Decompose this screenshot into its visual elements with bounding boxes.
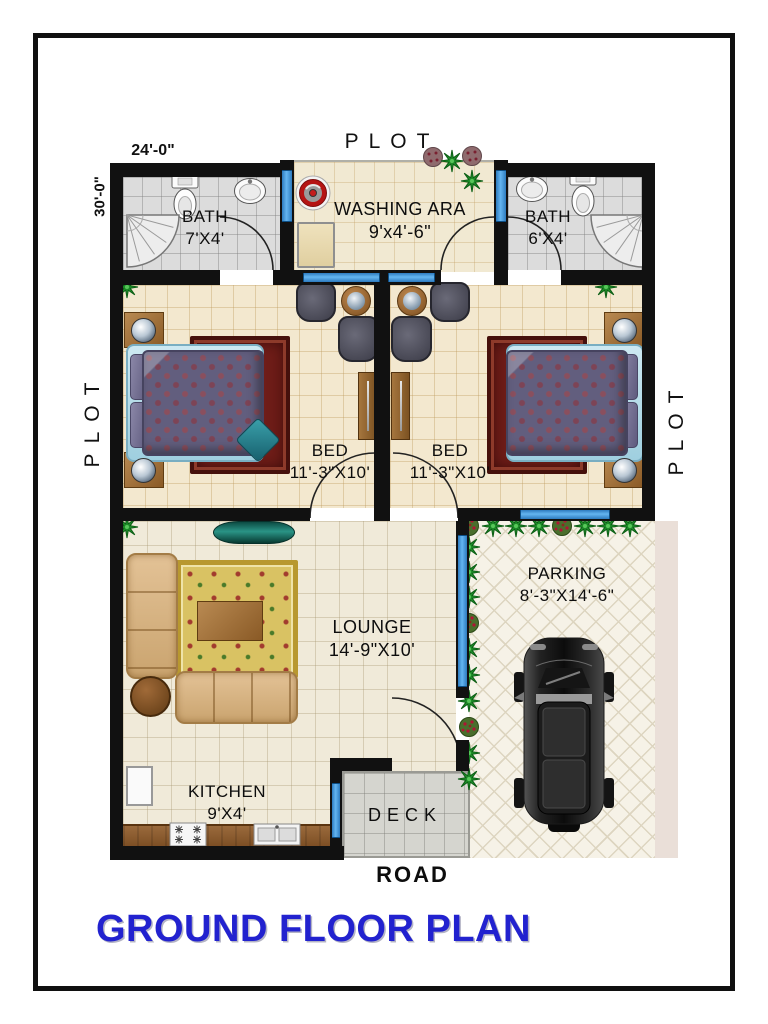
bed-right-side-table	[397, 286, 427, 316]
lounge-sofa	[175, 671, 298, 724]
window-washing-2	[388, 273, 435, 282]
dimension-plot-depth: 30'-0"	[92, 149, 109, 245]
road-label: ROAD	[340, 862, 485, 888]
label-bed-right: BED 11'-3"X10'	[385, 440, 515, 484]
room-name: BATH	[150, 206, 260, 228]
room-size: 11'-3"X10'	[385, 462, 515, 484]
dimension-plot-width: 24'-0"	[118, 142, 188, 160]
wall-bottom	[110, 846, 344, 860]
wall-between-bedrooms	[374, 285, 390, 521]
room-name: BED	[385, 440, 515, 462]
room-size: 7'X4'	[150, 228, 260, 250]
label-washing-area: WASHING ARA 9'x4'-6"	[310, 198, 490, 244]
bed-left-lamp-top	[131, 318, 156, 343]
room-size: 9'x4'-6"	[310, 221, 490, 244]
room-size: 11'-3"X10'	[265, 462, 395, 484]
wall-bed-left-bottom	[123, 508, 310, 521]
plot-label-left: PLOT	[81, 360, 105, 480]
plot-label-top: PLOT	[312, 130, 472, 154]
label-bath-left: BATH 7'X4'	[150, 206, 260, 250]
bed-right-lamp-top	[612, 318, 637, 343]
bed-left-lamp-bottom	[131, 458, 156, 483]
room-name: BED	[265, 440, 395, 462]
side-walkway	[655, 521, 678, 858]
room-name: PARKING	[487, 563, 647, 585]
room-size: 9'X4'	[152, 803, 302, 825]
kitchen-counter	[123, 824, 335, 848]
bed-right-armchair-2	[391, 316, 432, 362]
wall-bath-right-bottom	[561, 270, 642, 285]
plot-label-right: PLOT	[665, 368, 689, 488]
bed-left-armchair-2	[338, 316, 379, 362]
label-kitchen: KITCHEN 9'X4'	[152, 781, 302, 825]
lounge-round-table	[130, 676, 171, 717]
wall-bath-left-bottom	[123, 270, 220, 285]
window-bed-right-parking	[520, 510, 610, 519]
page-title: GROUND FLOOR PLAN	[96, 908, 531, 951]
wall-deck-top	[330, 758, 392, 771]
room-name: BATH	[493, 206, 603, 228]
room-size: 14'-9"X10'	[297, 639, 447, 662]
label-lounge: LOUNGE 14'-9"X10'	[297, 616, 447, 662]
wall-top-right	[494, 163, 655, 177]
room-name: KITCHEN	[152, 781, 302, 803]
room-name: DECK	[345, 804, 465, 827]
window-washing-1	[303, 273, 380, 282]
wall-top-left	[110, 163, 294, 177]
lounge-corner-sofa	[126, 553, 178, 679]
wall-deck-right-stub	[456, 740, 469, 771]
room-size: 6'X4'	[493, 228, 603, 250]
label-deck: DECK	[345, 804, 465, 827]
bed-right-duvet	[506, 350, 628, 456]
kitchen-refrigerator	[126, 766, 153, 806]
window-bath-left	[282, 170, 292, 222]
floor-plan-page: BATH 7'X4' WASHING ARA 9'x4'-6" BATH 6'X…	[0, 0, 768, 1024]
bed-right-armchair-1	[430, 282, 470, 322]
window-lounge-parking	[458, 535, 467, 687]
lounge-console	[213, 521, 295, 544]
label-bath-right: BATH 6'X4'	[493, 206, 603, 250]
lounge-coffee-table	[197, 601, 263, 641]
room-size: 8'-3"X14'-6"	[487, 585, 647, 607]
label-parking: PARKING 8'-3"X14'-6"	[487, 563, 647, 607]
bed-right-lamp-bottom	[612, 458, 637, 483]
bed-left-side-table	[341, 286, 371, 316]
window-kitchen-deck	[332, 783, 340, 838]
wall-left	[110, 163, 123, 860]
bed-left-armchair-1	[296, 282, 336, 322]
label-bed-left: BED 11'-3"X10'	[265, 440, 395, 484]
room-name: WASHING ARA	[310, 198, 490, 221]
bed-right-wardrobe	[391, 372, 410, 440]
room-name: LOUNGE	[297, 616, 447, 639]
wall-right	[642, 163, 655, 521]
wall-bath-left-bottom-stub	[273, 270, 294, 285]
